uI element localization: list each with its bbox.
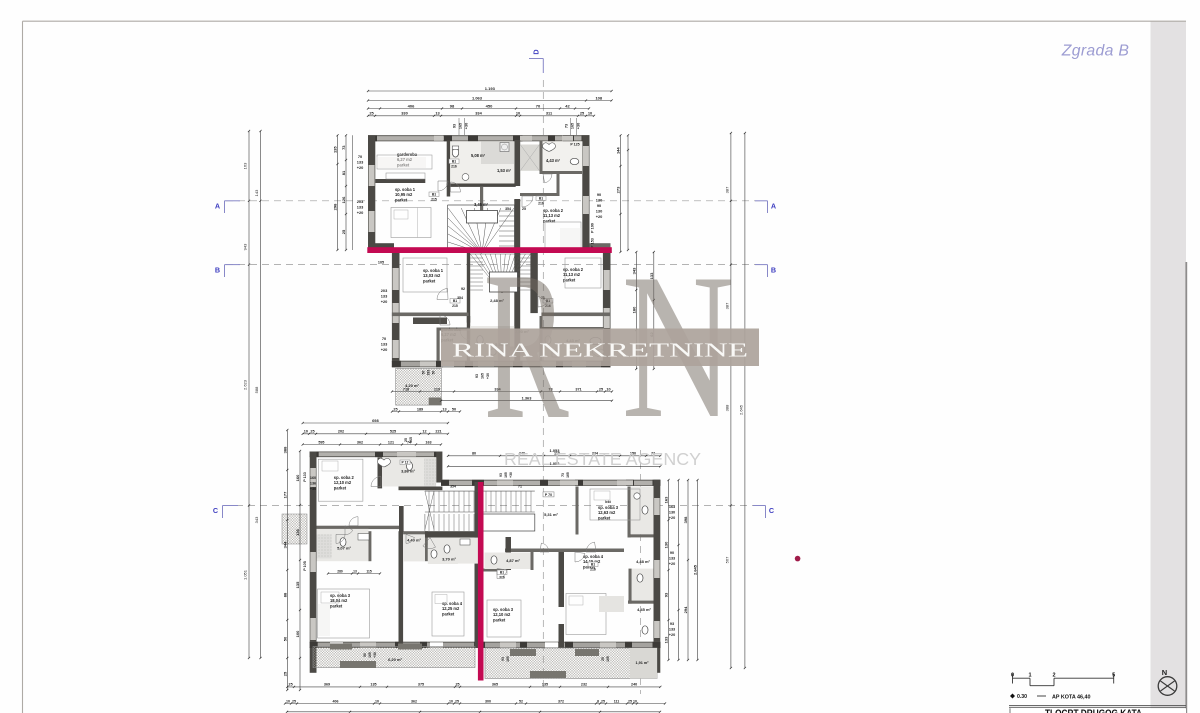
svg-text:144: 144 [616, 147, 621, 154]
svg-text:1.051: 1.051 [243, 569, 248, 580]
svg-text:10: 10 [516, 111, 520, 116]
svg-text:163: 163 [425, 440, 431, 444]
svg-text:177: 177 [282, 491, 287, 498]
svg-text:N: N [1162, 668, 1167, 677]
svg-text:1: 1 [1028, 673, 1031, 679]
svg-text:25: 25 [393, 407, 397, 411]
svg-text:+20: +20 [357, 210, 364, 215]
svg-text:10: 10 [449, 699, 453, 703]
svg-text:5: 5 [1112, 673, 1115, 679]
svg-text:165: 165 [506, 656, 510, 662]
svg-text:TLOCRT DRUGOG KATA: TLOCRT DRUGOG KATA [1045, 709, 1142, 713]
svg-text:50: 50 [452, 407, 456, 411]
svg-text:133: 133 [357, 160, 364, 165]
svg-text:398: 398 [683, 516, 688, 523]
svg-text:+20: +20 [669, 633, 675, 637]
svg-text:136: 136 [295, 528, 300, 535]
svg-text:B1: B1 [500, 571, 504, 575]
svg-text:Zgrada B: Zgrada B [1061, 43, 1129, 60]
svg-text:354: 354 [505, 207, 511, 211]
svg-text:136: 136 [310, 482, 316, 486]
svg-text:12: 12 [422, 430, 426, 434]
svg-text:93: 93 [664, 592, 669, 597]
svg-text:100: 100 [295, 630, 300, 637]
svg-text:B1: B1 [432, 193, 436, 197]
svg-text:93: 93 [475, 374, 479, 378]
svg-text:10: 10 [286, 699, 290, 703]
svg-text:133: 133 [664, 636, 669, 643]
svg-text:A: A [215, 202, 220, 211]
svg-text:10: 10 [588, 111, 592, 116]
svg-text:P 133: P 133 [303, 472, 307, 482]
svg-text:0: 0 [1011, 673, 1014, 679]
svg-text:25: 25 [455, 699, 459, 703]
svg-text:93: 93 [501, 657, 505, 661]
svg-text:216: 216 [451, 165, 457, 169]
svg-text:105: 105 [378, 261, 384, 265]
svg-text:216: 216 [590, 568, 596, 572]
svg-text:387: 387 [724, 186, 729, 193]
svg-text:0.30: 0.30 [1017, 694, 1027, 700]
svg-text:588: 588 [254, 386, 259, 393]
svg-text:4,45 m²: 4,45 m² [637, 607, 651, 612]
svg-text:135: 135 [295, 581, 300, 588]
svg-text:1,53 m²: 1,53 m² [497, 168, 512, 173]
svg-text:90: 90 [597, 203, 601, 208]
svg-text:1.063: 1.063 [472, 95, 483, 100]
svg-text:294: 294 [683, 606, 688, 613]
svg-text:165: 165 [566, 472, 570, 478]
svg-text:4,87 m²: 4,87 m² [506, 558, 520, 563]
svg-text:92: 92 [461, 287, 465, 291]
svg-text:130: 130 [596, 198, 603, 203]
svg-text:P 100: P 100 [591, 223, 595, 233]
svg-text:B1: B1 [591, 563, 595, 567]
svg-text:133: 133 [381, 342, 388, 347]
svg-text:93: 93 [499, 473, 503, 477]
svg-text:216: 216 [499, 576, 505, 580]
svg-text:25: 25 [404, 438, 408, 442]
svg-text:B1: B1 [452, 160, 456, 164]
svg-text:126: 126 [341, 196, 346, 203]
svg-text:70: 70 [382, 336, 386, 341]
svg-text:parket: parket [493, 617, 506, 622]
svg-text:362: 362 [357, 440, 363, 444]
svg-text:+30: +30 [310, 487, 316, 491]
svg-text:369: 369 [324, 683, 330, 687]
svg-text:4,48 m²: 4,48 m² [636, 559, 650, 564]
svg-text:108: 108 [595, 95, 602, 100]
svg-text:parket: parket [598, 515, 611, 520]
svg-text:50: 50 [432, 371, 436, 375]
svg-text:25: 25 [601, 699, 605, 703]
svg-text:+20: +20 [596, 214, 603, 219]
svg-text:372: 372 [558, 699, 564, 703]
svg-text:+30: +30 [509, 472, 513, 478]
svg-text:98: 98 [450, 103, 455, 108]
svg-text:A: A [771, 202, 776, 211]
svg-text:343: 343 [254, 516, 259, 523]
svg-text:130: 130 [669, 511, 675, 515]
svg-text:+30: +30 [373, 652, 377, 658]
svg-text:B1: B1 [539, 197, 543, 201]
svg-text:216: 216 [538, 202, 544, 206]
svg-text:375: 375 [418, 683, 424, 687]
svg-text:215: 215 [431, 198, 437, 202]
svg-text:25: 25 [599, 387, 603, 391]
svg-text:10: 10 [375, 699, 379, 703]
svg-text:C: C [213, 506, 218, 515]
svg-text:163: 163 [243, 162, 248, 169]
svg-text:135: 135 [370, 683, 376, 687]
svg-text:13: 13 [353, 569, 357, 573]
svg-text:698: 698 [372, 418, 379, 423]
svg-text:88: 88 [282, 592, 287, 597]
svg-text:42: 42 [565, 103, 570, 108]
svg-text:D: D [532, 49, 541, 54]
svg-text:2.623: 2.623 [243, 379, 248, 390]
svg-text:90: 90 [670, 551, 674, 555]
svg-text:+20: +20 [381, 347, 388, 352]
svg-text:115: 115 [366, 569, 371, 573]
svg-text:133: 133 [669, 557, 675, 561]
svg-text:73: 73 [561, 473, 565, 477]
svg-text:6,20 m²: 6,20 m² [388, 657, 402, 662]
svg-text:160: 160 [295, 474, 300, 481]
svg-text:215: 215 [452, 304, 458, 308]
svg-text:+20: +20 [669, 562, 675, 566]
svg-text:parket: parket [330, 603, 343, 608]
svg-text:202: 202 [338, 430, 344, 434]
svg-text:10: 10 [633, 699, 637, 703]
svg-text:133: 133 [669, 628, 675, 632]
svg-text:25: 25 [292, 699, 296, 703]
svg-text:1,91 m²: 1,91 m² [635, 661, 649, 665]
svg-text:5,31 m²: 5,31 m² [544, 512, 558, 517]
svg-text:718: 718 [403, 387, 409, 391]
svg-text:25: 25 [310, 430, 314, 434]
svg-text:25: 25 [455, 683, 459, 687]
svg-text:280: 280 [337, 569, 343, 573]
svg-text:+30: +30 [577, 123, 581, 129]
svg-text:165: 165 [571, 123, 575, 129]
svg-text:RINA NEKRETNINE: RINA NEKRETNINE [452, 340, 748, 362]
svg-text:344: 344 [282, 541, 287, 548]
svg-text:50: 50 [422, 371, 426, 375]
svg-text:73: 73 [341, 145, 346, 150]
svg-text:165: 165 [504, 472, 508, 478]
svg-text:189: 189 [417, 407, 423, 411]
svg-text:C: C [769, 506, 774, 515]
svg-text:406: 406 [408, 103, 415, 108]
svg-text:135: 135 [333, 146, 338, 153]
svg-text:kšt: kšt [605, 499, 611, 504]
svg-text:2.645: 2.645 [693, 564, 698, 575]
svg-text:354: 354 [450, 485, 456, 489]
svg-text:165: 165 [368, 652, 372, 658]
svg-text:283: 283 [427, 370, 431, 376]
svg-text:REAL ESTATE AGENCY: REAL ESTATE AGENCY [504, 449, 701, 469]
svg-text:135: 135 [542, 683, 548, 687]
svg-text:25: 25 [628, 699, 632, 703]
svg-text:52: 52 [519, 699, 523, 703]
svg-text:70: 70 [358, 154, 362, 159]
svg-text:595: 595 [318, 440, 324, 444]
svg-text:parket: parket [442, 611, 455, 616]
svg-text:133: 133 [381, 294, 388, 299]
svg-text:P 153: P 153 [591, 238, 595, 248]
svg-text:300: 300 [485, 699, 491, 703]
svg-text:5,07 m²: 5,07 m² [337, 546, 351, 551]
svg-text:3,86 m²: 3,86 m² [401, 469, 415, 474]
svg-text:203: 203 [357, 199, 364, 204]
svg-text:93: 93 [670, 622, 674, 626]
svg-text:50: 50 [363, 653, 367, 657]
svg-text:50: 50 [282, 636, 287, 641]
svg-text:10: 10 [606, 387, 610, 391]
svg-text:362: 362 [411, 699, 417, 703]
svg-text:AP KOTA 46,40: AP KOTA 46,40 [1052, 694, 1091, 700]
svg-text:354: 354 [457, 296, 463, 300]
svg-text:73: 73 [565, 124, 569, 128]
svg-text:119: 119 [434, 387, 440, 391]
svg-text:3,45 m²: 3,45 m² [474, 202, 489, 207]
svg-text:133: 133 [357, 205, 364, 210]
svg-text:160: 160 [310, 476, 316, 480]
svg-text:B: B [215, 266, 220, 275]
svg-text:71: 71 [518, 485, 522, 489]
svg-text:25: 25 [282, 671, 287, 676]
svg-text:240: 240 [631, 683, 637, 687]
svg-text:121: 121 [388, 440, 394, 444]
svg-text:80: 80 [472, 452, 476, 456]
svg-text:203: 203 [381, 288, 388, 293]
svg-text:parket: parket [423, 278, 436, 283]
svg-text:4,43 m²: 4,43 m² [546, 158, 561, 163]
svg-text:93: 93 [453, 124, 457, 128]
svg-text:P 12: P 12 [402, 461, 409, 465]
svg-text:25: 25 [341, 229, 346, 234]
svg-text:388: 388 [282, 446, 287, 453]
svg-text:406: 406 [333, 699, 339, 703]
svg-text:+30: +30 [465, 123, 469, 129]
svg-text:13: 13 [442, 407, 446, 411]
svg-text:298: 298 [333, 203, 338, 210]
svg-text:parket: parket [395, 197, 408, 202]
svg-text:+20: +20 [669, 516, 675, 520]
svg-text:1.193: 1.193 [485, 86, 496, 91]
svg-text:70: 70 [536, 103, 541, 108]
svg-text:25: 25 [522, 207, 526, 211]
svg-text:943: 943 [243, 243, 248, 250]
svg-text:3,70 m²: 3,70 m² [442, 557, 456, 562]
svg-text:232: 232 [581, 683, 587, 687]
svg-text:221: 221 [435, 430, 441, 434]
svg-text:163: 163 [669, 505, 675, 509]
svg-text:P 105: P 105 [303, 561, 307, 571]
svg-text:165: 165 [409, 437, 413, 443]
svg-text:8: 8 [597, 699, 599, 703]
svg-text:+20: +20 [381, 299, 388, 304]
svg-text:334: 334 [475, 111, 482, 116]
svg-text:parket: parket [334, 485, 347, 490]
svg-text:130: 130 [596, 209, 603, 214]
svg-text:143: 143 [254, 189, 259, 196]
svg-text:371: 371 [575, 387, 581, 391]
svg-text:365: 365 [492, 683, 498, 687]
svg-text:P 70: P 70 [545, 493, 552, 497]
svg-text:B: B [771, 266, 776, 275]
svg-text:311: 311 [546, 111, 553, 116]
svg-text:90: 90 [597, 192, 601, 197]
svg-text:130: 130 [664, 541, 669, 548]
svg-text:10: 10 [304, 430, 308, 434]
svg-text:273: 273 [616, 186, 621, 193]
svg-text:25: 25 [289, 683, 293, 687]
svg-text:450: 450 [486, 103, 493, 108]
svg-text:330: 330 [401, 111, 408, 116]
svg-text:165: 165 [606, 656, 610, 662]
svg-text:5,08 m²: 5,08 m² [471, 153, 486, 158]
svg-text:+20: +20 [357, 165, 364, 170]
svg-text:111: 111 [614, 699, 620, 703]
svg-text:25: 25 [601, 657, 605, 661]
svg-text:567: 567 [724, 556, 729, 563]
svg-text:163: 163 [664, 496, 669, 503]
svg-text:2: 2 [1052, 673, 1055, 679]
svg-text:81: 81 [341, 170, 346, 175]
svg-text:525: 525 [390, 430, 396, 434]
svg-text:2.645: 2.645 [738, 404, 743, 415]
svg-text:P 125: P 125 [570, 143, 579, 147]
